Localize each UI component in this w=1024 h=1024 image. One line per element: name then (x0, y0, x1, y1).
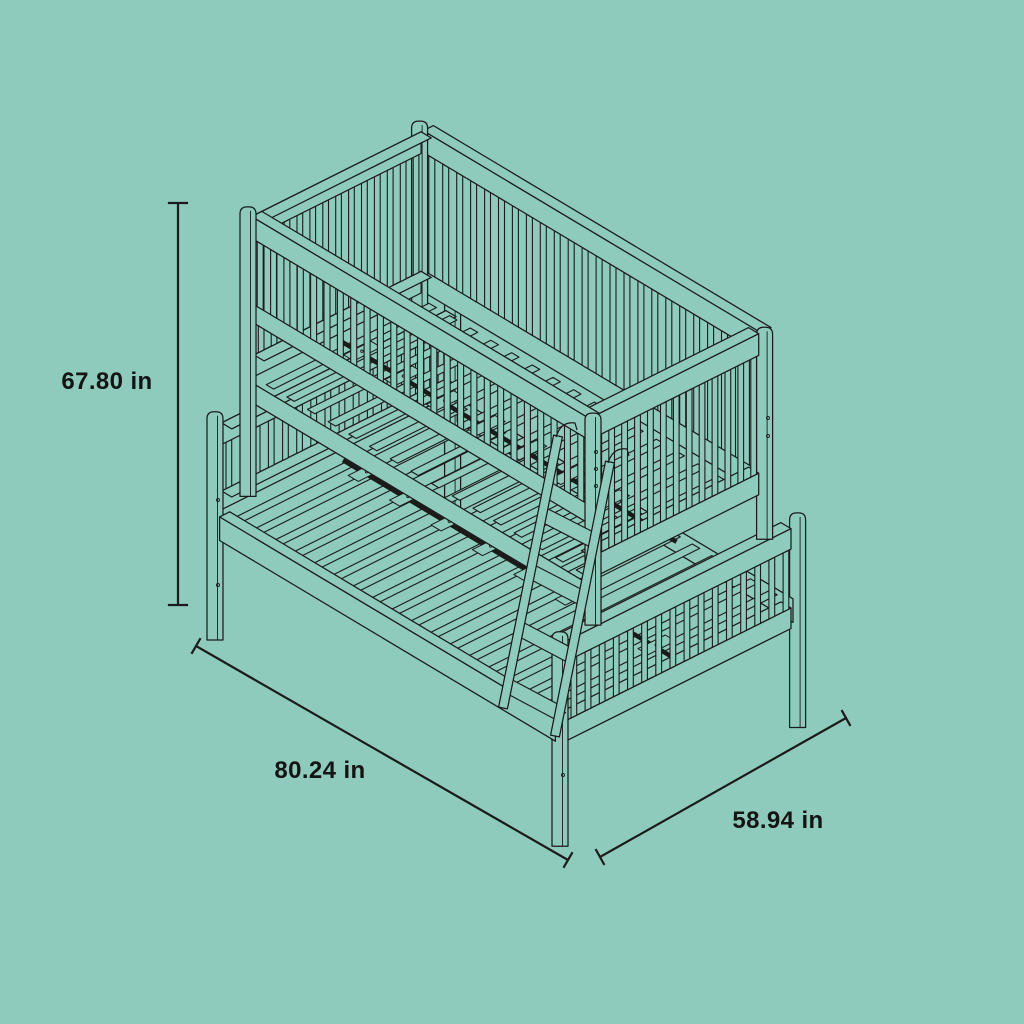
height-dimension-label: 67.80 in (61, 368, 152, 395)
bunk-bed-dimension-diagram: 67.80 in 80.24 in 58.94 in (0, 0, 1024, 1024)
dimension-diagram-page: 67.80 in 80.24 in 58.94 in (0, 0, 1024, 1024)
depth-dimension-label: 58.94 in (732, 807, 823, 834)
length-dimension-label: 80.24 in (274, 757, 365, 784)
